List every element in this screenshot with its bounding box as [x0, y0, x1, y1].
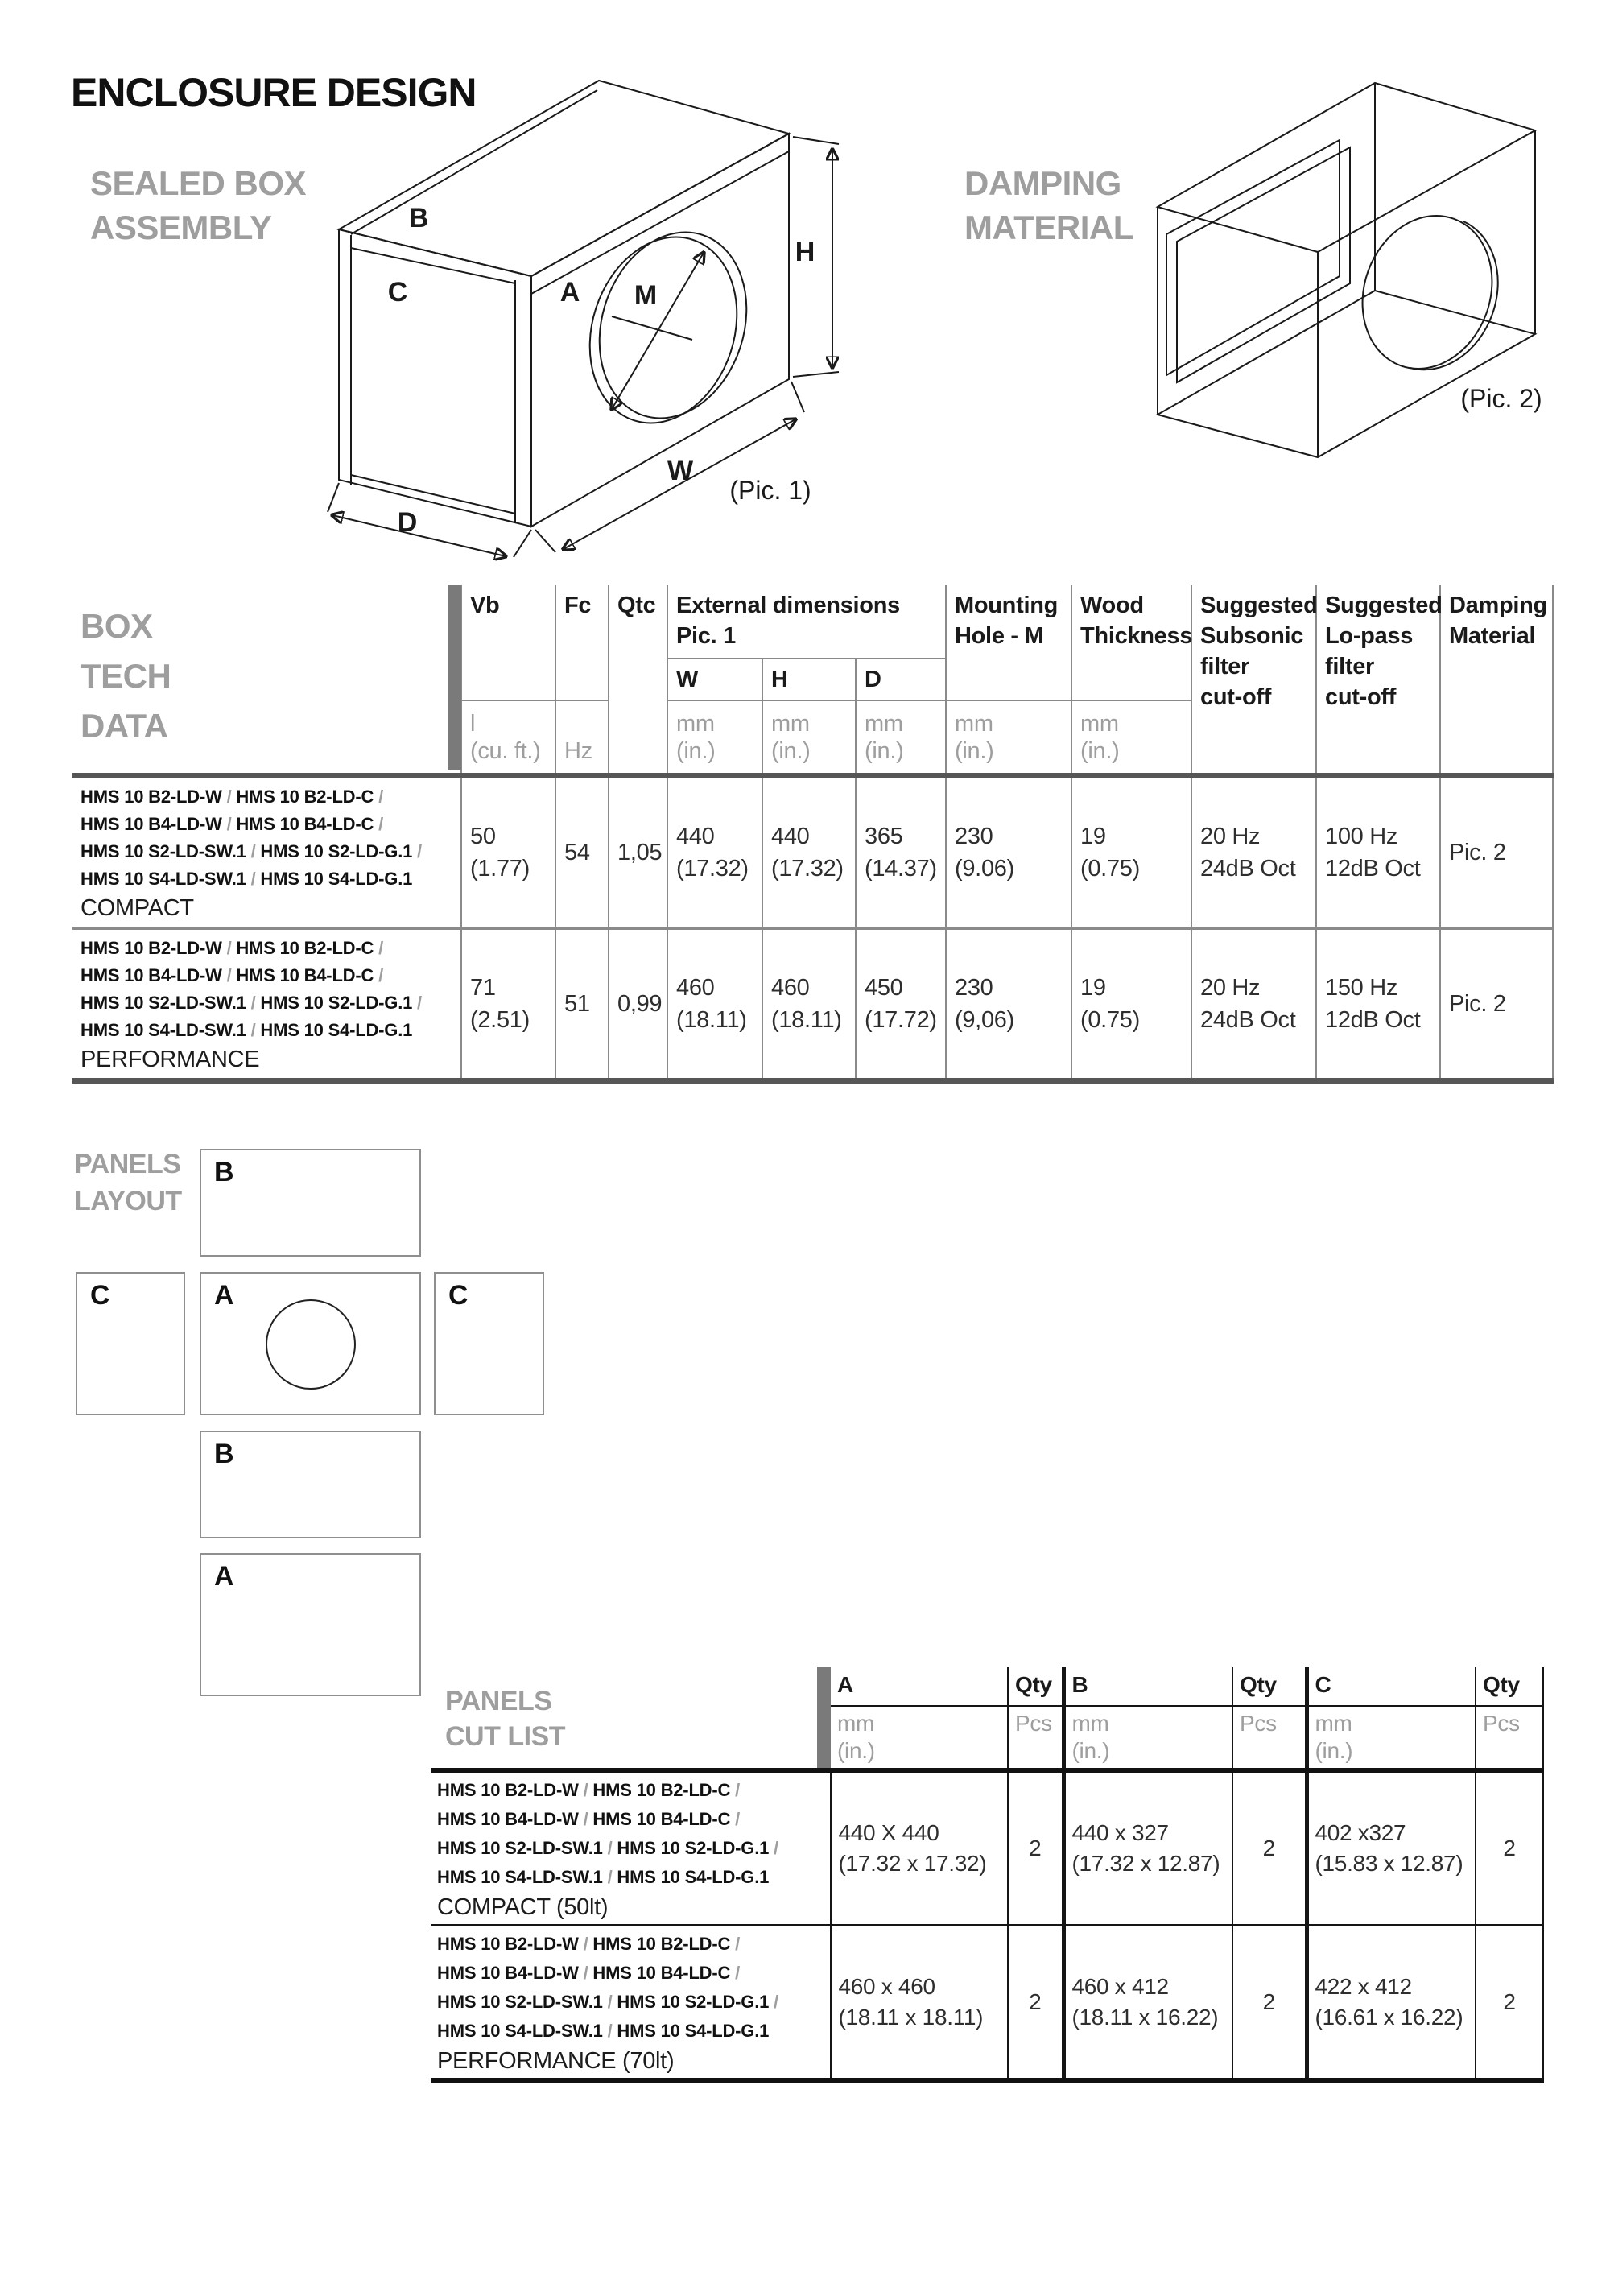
unit-a: mm (in.) [831, 1706, 1008, 1770]
col-qtc: Qtc [609, 585, 667, 775]
label-side-panel: C [388, 277, 408, 308]
model-separator: / [603, 1867, 617, 1887]
model-name: HMS 10 S4-LD-G.1 [260, 1020, 412, 1040]
label-width: W [667, 456, 694, 486]
model-separator: / [730, 1934, 740, 1954]
cell-vb: 71 (2.51) [461, 928, 555, 1081]
panel-b-bottom: B [200, 1431, 421, 1538]
model-name: HMS 10 S4-LD-G.1 [617, 1867, 769, 1887]
unit-w: mm (in.) [667, 700, 762, 775]
cell-damping: Pic. 2 [1440, 928, 1553, 1081]
model-separator: / [222, 814, 237, 834]
col-c: C [1307, 1667, 1476, 1706]
model-name: HMS 10 B2-LD-W [80, 938, 222, 958]
panel-b-top: B [200, 1149, 421, 1257]
cell-damping: Pic. 2 [1440, 775, 1553, 928]
table-row: HMS 10 B2-LD-W / HMS 10 B2-LD-C / HMS 10… [72, 928, 1553, 1081]
model-separator: / [412, 841, 422, 861]
model-separator: / [603, 1992, 617, 2012]
model-name: HMS 10 S4-LD-SW.1 [437, 1867, 603, 1887]
col-b-qty: Qty [1232, 1667, 1307, 1706]
model-list: HMS 10 B2-LD-W / HMS 10 B2-LD-C / HMS 10… [437, 1930, 824, 2046]
cell-lopass: 100 Hz 12dB Oct [1316, 775, 1440, 928]
unit-d: mm (in.) [856, 700, 946, 775]
unit-h: mm (in.) [762, 700, 856, 775]
label-height: H [795, 237, 815, 267]
cell-a: 440 X 440 (17.32 x 17.32) [831, 1770, 1008, 1926]
model-name: HMS 10 S4-LD-SW.1 [437, 2021, 603, 2041]
panel-label: C [77, 1274, 184, 1311]
col-subsonic-filter: Suggested Subsonic filter cut-off [1191, 585, 1316, 775]
col-wood-thickness: Wood Thickness [1071, 585, 1191, 700]
model-name: HMS 10 B2-LD-C [236, 938, 374, 958]
cutout-hole-rim [1410, 221, 1498, 370]
model-separator: / [769, 1992, 778, 2012]
col-a: A [831, 1667, 1008, 1706]
panels-cut-list-heading: PANELS CUT LIST [437, 1670, 824, 1754]
model-separator: / [579, 1780, 593, 1800]
model-name: HMS 10 S2-LD-G.1 [617, 1838, 769, 1858]
model-name: HMS 10 B4-LD-W [437, 1809, 579, 1829]
pic2-caption: (Pic. 2) [1460, 384, 1542, 413]
model-name: HMS 10 S4-LD-SW.1 [80, 869, 246, 889]
model-name: HMS 10 S4-LD-SW.1 [80, 1020, 246, 1040]
model-name: HMS 10 S2-LD-SW.1 [80, 993, 246, 1013]
cell-fc: 54 [555, 775, 609, 928]
model-name: HMS 10 S2-LD-SW.1 [437, 1992, 603, 2012]
model-name: HMS 10 S2-LD-G.1 [260, 993, 412, 1013]
sealed-box-diagram: B C A M H W D (Pic. 1) [328, 81, 839, 557]
table-row: HMS 10 B2-LD-W / HMS 10 B2-LD-C / HMS 10… [431, 1926, 1543, 2081]
model-name: HMS 10 B4-LD-W [80, 965, 222, 985]
model-separator: / [246, 1020, 261, 1040]
cell-qtc: 0,99 [609, 928, 667, 1081]
unit-b: mm (in.) [1063, 1706, 1232, 1770]
col-w: W [667, 659, 762, 700]
model-list: HMS 10 B2-LD-W / HMS 10 B2-LD-C / HMS 10… [80, 783, 452, 893]
width-dimension-arrow [563, 419, 795, 549]
cell-subsonic: 20 Hz 24dB Oct [1191, 775, 1316, 928]
col-damping-material: Damping Material [1440, 585, 1553, 775]
panel-c-right: C [434, 1272, 544, 1415]
model-separator: / [246, 869, 261, 889]
model-name: HMS 10 B4-LD-C [236, 965, 374, 985]
cell-w: 440 (17.32) [667, 775, 762, 928]
col-vb: Vb [461, 585, 555, 700]
model-name: HMS 10 B4-LD-C [592, 1809, 730, 1829]
model-name: HMS 10 B2-LD-C [236, 787, 374, 807]
model-separator: / [579, 1934, 593, 1954]
model-name: HMS 10 S2-LD-G.1 [617, 1992, 769, 2012]
panels-cut-list-table: PANELS CUT LIST A Qty B Qty C Qty mm (in… [431, 1667, 1544, 2083]
model-name: HMS 10 S4-LD-G.1 [617, 2021, 769, 2041]
variant-label: COMPACT (50lt) [437, 1894, 824, 1921]
box-tech-data-table: BOX TECH DATA Vb Fc Qtc External dimensi… [72, 585, 1554, 1084]
label-front-panel: A [560, 277, 580, 308]
cutout-hole [1342, 197, 1513, 387]
cell-vb: 50 (1.77) [461, 775, 555, 928]
model-separator: / [374, 787, 383, 807]
model-separator: / [769, 1838, 778, 1858]
damping-diagram: (Pic. 2) [1158, 83, 1542, 457]
cell-h: 460 (18.11) [762, 928, 856, 1081]
cell-subsonic: 20 Hz 24dB Oct [1191, 928, 1316, 1081]
unit-wood: mm (in.) [1071, 700, 1191, 775]
model-separator: / [412, 993, 422, 1013]
label-depth: D [398, 507, 418, 538]
cell-c: 422 x 412 (16.61 x 16.22) [1307, 1926, 1476, 2081]
model-separator: / [730, 1963, 740, 1983]
hole-diameter-arrow [612, 253, 704, 409]
cell-d: 450 (17.72) [856, 928, 946, 1081]
model-separator: / [246, 841, 261, 861]
model-separator: / [730, 1809, 740, 1829]
model-separator: / [730, 1780, 740, 1800]
model-separator: / [246, 993, 261, 1013]
model-list: HMS 10 B2-LD-W / HMS 10 B2-LD-C / HMS 10… [80, 935, 452, 1044]
cell-w: 460 (18.11) [667, 928, 762, 1081]
depth-dimension-arrow [332, 515, 506, 556]
panel-a-hole [266, 1299, 356, 1390]
speaker-hole [567, 218, 760, 443]
cell-b: 460 x 412 (18.11 x 16.22) [1063, 1926, 1232, 2081]
pic1-caption: (Pic. 1) [729, 476, 811, 505]
model-name: HMS 10 B4-LD-C [592, 1963, 730, 1983]
cell-wood: 19 (0.75) [1071, 775, 1191, 928]
model-separator: / [579, 1809, 593, 1829]
unit-vb: l (cu. ft.) [461, 700, 555, 775]
variant-label: PERFORMANCE (70lt) [437, 2048, 824, 2075]
cell-c-qty: 2 [1476, 1770, 1543, 1926]
box-tech-data-heading: BOX TECH DATA [80, 590, 452, 751]
model-name: HMS 10 S4-LD-G.1 [260, 869, 412, 889]
damping-panel-edge [1166, 140, 1340, 375]
model-name: HMS 10 B2-LD-W [437, 1934, 579, 1954]
tech-table-accent-bar [448, 585, 461, 770]
model-separator: / [374, 965, 383, 985]
unit-a-qty: Pcs [1008, 1706, 1063, 1770]
panel-label: A [201, 1555, 419, 1592]
model-separator: / [222, 965, 237, 985]
cut-list-accent-bar [817, 1667, 831, 1768]
cell-mounting: 230 (9,06) [946, 928, 1071, 1081]
cell-b-qty: 2 [1232, 1926, 1307, 2081]
damping-panel [1177, 147, 1350, 382]
unit-fc: Hz [555, 700, 609, 775]
col-h: H [762, 659, 856, 700]
damping-material-heading: DAMPING MATERIAL [964, 161, 1133, 250]
col-fc: Fc [555, 585, 609, 700]
unit-mounting: mm (in.) [946, 700, 1071, 775]
cell-fc: 51 [555, 928, 609, 1081]
cell-mounting: 230 (9.06) [946, 775, 1071, 928]
unit-c: mm (in.) [1307, 1706, 1476, 1770]
panel-a-bottom: A [200, 1553, 421, 1696]
model-name: HMS 10 B4-LD-C [236, 814, 374, 834]
cell-c: 402 x327 (15.83 x 12.87) [1307, 1770, 1476, 1926]
model-name: HMS 10 S2-LD-G.1 [260, 841, 412, 861]
model-separator: / [222, 938, 237, 958]
model-separator: / [603, 2021, 617, 2041]
panel-c-left: C [76, 1272, 185, 1415]
cell-a-qty: 2 [1008, 1770, 1063, 1926]
model-name: HMS 10 B2-LD-W [437, 1780, 579, 1800]
model-name: HMS 10 B4-LD-W [437, 1963, 579, 1983]
model-separator: / [579, 1963, 593, 1983]
cell-a-qty: 2 [1008, 1926, 1063, 2081]
cell-wood: 19 (0.75) [1071, 928, 1191, 1081]
page-title: ENCLOSURE DESIGN [71, 69, 477, 116]
col-b: B [1063, 1667, 1232, 1706]
cell-lopass: 150 Hz 12dB Oct [1316, 928, 1440, 1081]
table-row: HMS 10 B2-LD-W / HMS 10 B2-LD-C / HMS 10… [431, 1770, 1543, 1926]
col-lopass-filter: Suggested Lo-pass filter cut-off [1316, 585, 1440, 775]
model-name: HMS 10 S2-LD-SW.1 [80, 841, 246, 861]
col-a-qty: Qty [1008, 1667, 1063, 1706]
col-c-qty: Qty [1476, 1667, 1543, 1706]
panel-label: B [201, 1150, 419, 1188]
label-top-panel: B [409, 203, 429, 233]
variant-label: PERFORMANCE [80, 1047, 452, 1073]
unit-c-qty: Pcs [1476, 1706, 1543, 1770]
panel-label: B [201, 1432, 419, 1470]
model-list: HMS 10 B2-LD-W / HMS 10 B2-LD-C / HMS 10… [437, 1776, 824, 1892]
table-row: HMS 10 B2-LD-W / HMS 10 B2-LD-C / HMS 10… [72, 775, 1553, 928]
cell-a: 460 x 460 (18.11 x 18.11) [831, 1926, 1008, 2081]
model-name: HMS 10 B4-LD-W [80, 814, 222, 834]
model-separator: / [222, 787, 237, 807]
cell-h: 440 (17.32) [762, 775, 856, 928]
model-separator: / [374, 938, 383, 958]
cell-d: 365 (14.37) [856, 775, 946, 928]
col-mounting-hole: Mounting Hole - M [946, 585, 1071, 700]
variant-label: COMPACT [80, 895, 452, 922]
model-separator: / [374, 814, 383, 834]
cell-b: 440 x 327 (17.32 x 12.87) [1063, 1770, 1232, 1926]
col-external-dimensions: External dimensions Pic. 1 [667, 585, 946, 659]
model-name: HMS 10 S2-LD-SW.1 [437, 1838, 603, 1858]
model-name: HMS 10 B2-LD-C [592, 1934, 730, 1954]
unit-b-qty: Pcs [1232, 1706, 1307, 1770]
col-d: D [856, 659, 946, 700]
label-hole: M [634, 280, 657, 311]
model-name: HMS 10 B2-LD-W [80, 787, 222, 807]
cell-qtc: 1,05 [609, 775, 667, 928]
model-separator: / [603, 1838, 617, 1858]
panels-layout-heading: PANELS LAYOUT [74, 1146, 182, 1220]
cell-c-qty: 2 [1476, 1926, 1543, 2081]
sealed-box-heading: SEALED BOX ASSEMBLY [90, 161, 306, 250]
speaker-hole-rim [576, 213, 770, 438]
cell-b-qty: 2 [1232, 1770, 1307, 1926]
model-name: HMS 10 B2-LD-C [592, 1780, 730, 1800]
panel-label: C [436, 1274, 543, 1311]
